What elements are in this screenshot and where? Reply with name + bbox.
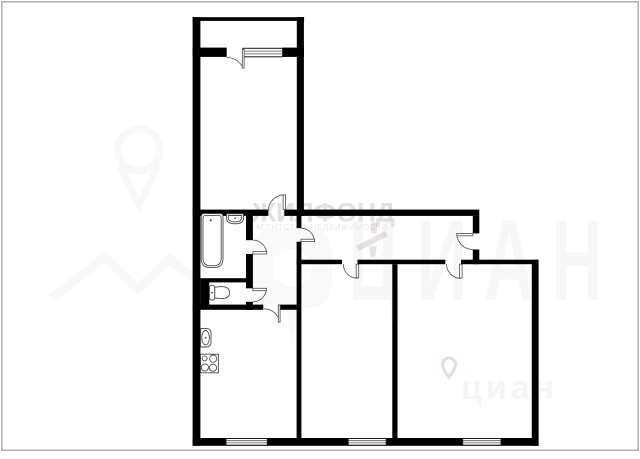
svg-text:АГЕНТСТВО НЕДВИЖИМОСТИ: АГЕНТСТВО НЕДВИЖИМОСТИ bbox=[255, 223, 388, 232]
svg-text:циан: циан bbox=[461, 369, 558, 407]
